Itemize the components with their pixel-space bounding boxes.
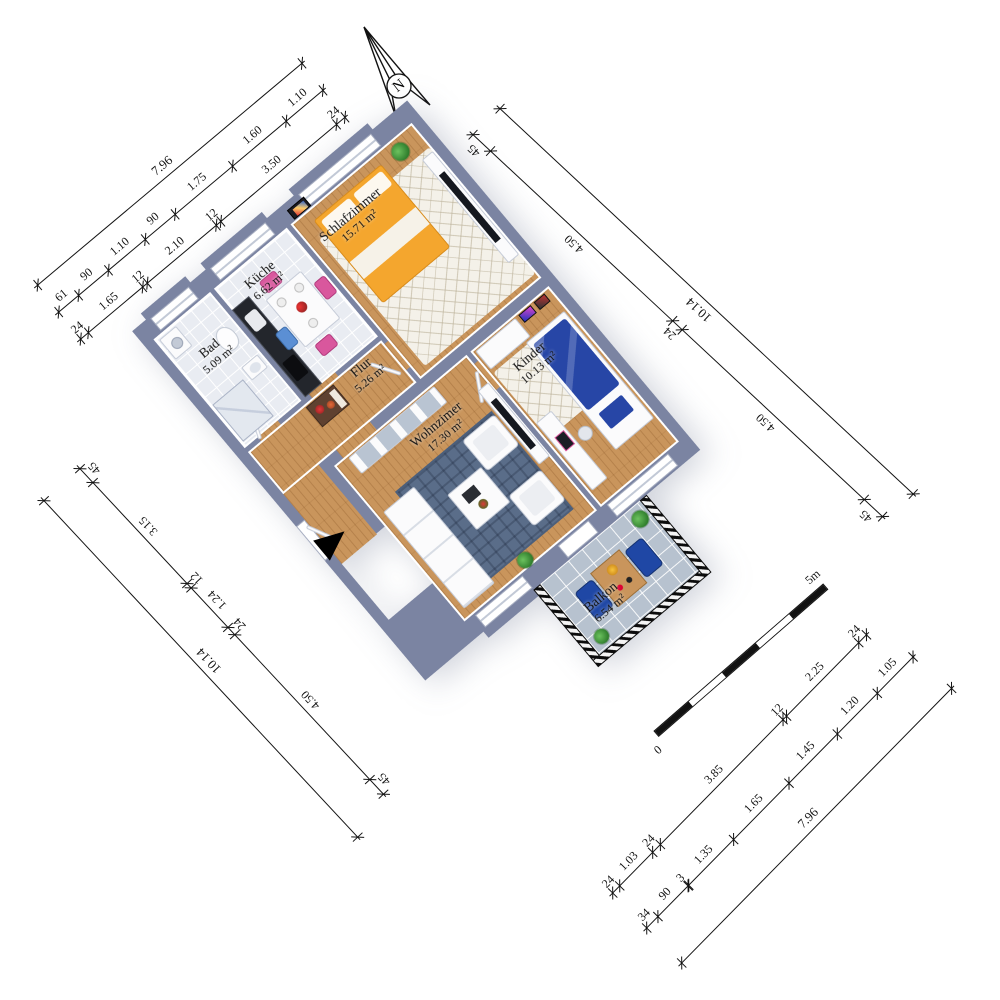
dimension-label: 10.14 xyxy=(682,294,714,326)
dimension-label: 3 xyxy=(673,871,688,886)
dimension-label: 1.10 xyxy=(107,234,133,259)
plate xyxy=(292,281,306,295)
plate xyxy=(306,316,320,330)
dimension-label: 4.50 xyxy=(298,687,323,713)
dimension-label: 34 xyxy=(635,905,654,924)
dimension-label: 3.15 xyxy=(136,513,161,539)
dimension-label: 10.14 xyxy=(193,645,225,677)
dimension-tick xyxy=(942,679,960,697)
dimension-label: 90 xyxy=(143,209,162,228)
dimension-label: 1.05 xyxy=(875,655,900,680)
dimension-label: 61 xyxy=(52,286,71,305)
dimension-tick xyxy=(464,125,482,143)
dimension-tick xyxy=(903,648,921,666)
dimension-label: 1.03 xyxy=(616,848,641,873)
dimension-tick xyxy=(868,683,886,701)
dim-chain-bottom-overall: 7.96 xyxy=(681,688,951,963)
scale-bar: 0 5m xyxy=(651,581,830,739)
dim-chain-bottom-walls: 241.03243.85122.2524 xyxy=(612,635,866,893)
table-flowers xyxy=(476,497,490,511)
dimension-label: 1.10 xyxy=(284,85,310,110)
plate xyxy=(275,295,289,309)
dimension-label: 4.50 xyxy=(561,231,587,256)
dimension-label: 7.96 xyxy=(148,152,176,179)
dimension-tick xyxy=(277,112,295,130)
armchair-cushion xyxy=(518,479,556,517)
dimension-tick xyxy=(223,156,241,174)
dimension-label: 90 xyxy=(655,884,674,903)
dimension-label: 1.60 xyxy=(240,123,266,148)
scale-bar-segment xyxy=(688,673,726,707)
scale-bar-zero-label: 0 xyxy=(651,742,665,757)
dimension-label: 1.65 xyxy=(741,791,766,816)
dimension-label: 4.50 xyxy=(753,410,779,435)
scale-bar-blocks xyxy=(653,583,828,737)
dimension-tick xyxy=(69,286,87,304)
dimension-label: 3.85 xyxy=(701,762,726,787)
dimension-tick xyxy=(165,205,183,223)
dimension-tick xyxy=(35,491,53,509)
dimension-tick xyxy=(49,303,67,321)
dimension-tick xyxy=(828,724,846,742)
dimension-tick xyxy=(491,99,509,117)
basin xyxy=(247,360,263,375)
dimension-label: 45 xyxy=(375,770,394,789)
dimension-label: 1.45 xyxy=(793,738,818,763)
kinder-foot-pillow xyxy=(598,395,634,430)
scale-bar-segment xyxy=(655,702,693,736)
scale-bar-segment xyxy=(756,614,794,648)
dimension-label: 7.96 xyxy=(794,804,821,831)
dimension-label: 45 xyxy=(465,141,484,160)
floor-plan-page: N xyxy=(0,0,1000,1000)
armchair-cushion xyxy=(472,424,510,462)
dimension-tick xyxy=(724,830,742,848)
dimension-label: 45 xyxy=(856,506,875,525)
dim-chain-left-overall: 10.14 xyxy=(44,500,358,836)
dimension-label: 1.65 xyxy=(96,289,122,314)
dimension-tick xyxy=(135,230,153,248)
dimension-label: 45 xyxy=(85,459,104,478)
dimension-label: 2.25 xyxy=(802,659,827,684)
dimension-tick xyxy=(779,774,797,792)
dimension-tick xyxy=(855,490,873,508)
floor-plan: Schlafzimmer15.71 m² Küche6.62 m² Bad5.0… xyxy=(132,100,767,760)
dimension-label: 1.35 xyxy=(691,842,716,867)
dimension-tick xyxy=(482,142,500,160)
dimension-tick xyxy=(28,276,46,294)
dimension-label: 2.10 xyxy=(162,233,188,258)
dimension-tick xyxy=(349,827,367,845)
dimension-label: 3.50 xyxy=(259,152,285,177)
dimension-tick xyxy=(904,484,922,502)
dimension-tick xyxy=(313,81,331,99)
dimension-tick xyxy=(873,507,891,525)
dimension-tick xyxy=(99,261,117,279)
dimension-label: 1.24 xyxy=(205,587,230,613)
dimension-label: 1.20 xyxy=(837,693,862,718)
dimension-label: 90 xyxy=(77,265,96,284)
scale-bar-segment xyxy=(722,643,760,677)
dimension-tick xyxy=(672,954,690,972)
washer-door xyxy=(169,335,186,352)
scale-bar-segment xyxy=(789,585,827,619)
fruit-bowl xyxy=(294,299,309,314)
dimension-label: 1.75 xyxy=(184,169,210,194)
flowers xyxy=(313,403,326,416)
dimension-tick xyxy=(292,54,310,72)
